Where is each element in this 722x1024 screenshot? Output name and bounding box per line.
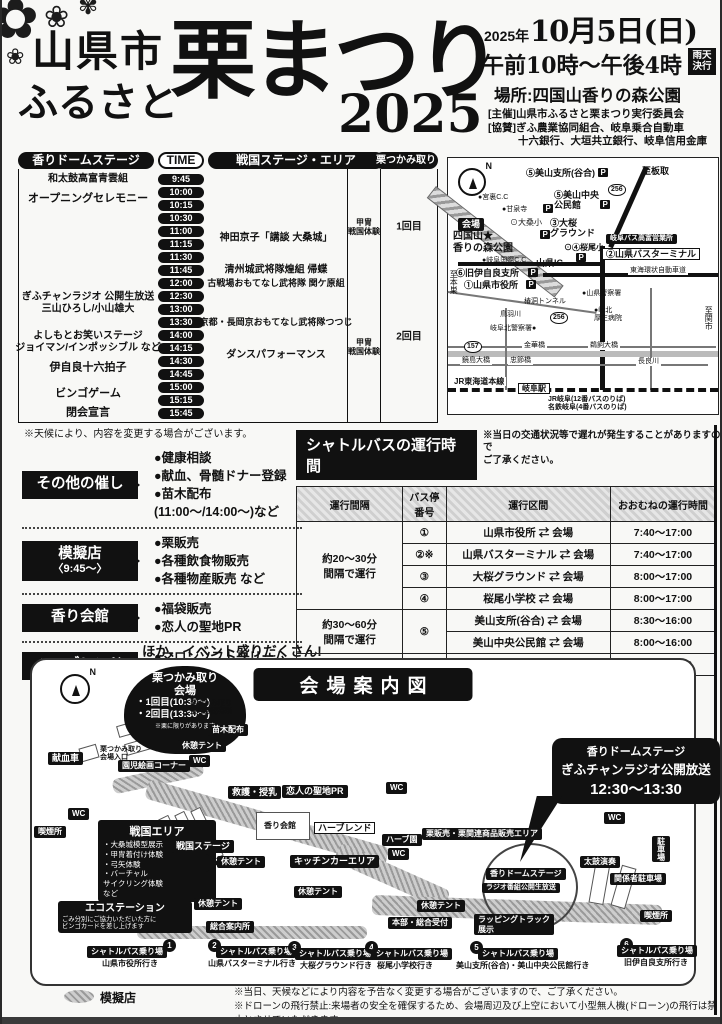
parking-icon: P xyxy=(598,168,608,177)
shuttle-stop-label: シャトルバス乗り場 xyxy=(617,945,697,957)
route-cell: 美山中央公民館 ⇄ 会場 xyxy=(446,632,610,654)
route-256-shield: 256 xyxy=(550,312,568,324)
time-slot-11:15: 11:15 xyxy=(158,239,204,250)
event-armor-1: 甲冑 戦国体験 xyxy=(348,218,380,236)
road xyxy=(650,288,652,390)
stop1-dest: 山県市役所行き xyxy=(102,959,158,968)
interval-cell: 約30〜60分 間隔で運行 xyxy=(297,610,403,654)
golf-club: ●宮裏C.C xyxy=(478,194,508,202)
parking-icon: P xyxy=(526,280,536,289)
time-slot-13:30: 13:30 xyxy=(158,317,204,328)
event-date: 10月5日(日) xyxy=(530,8,697,50)
event-opening: オープニングセレモニー xyxy=(28,193,148,206)
jr-line xyxy=(448,388,718,392)
city-hall: ①山県市役所 xyxy=(464,280,518,290)
extras-group-title: 香り会館 xyxy=(22,604,138,632)
kinka-bridge: 金華橋 xyxy=(522,342,547,350)
extras-item: ●苗木配布(11:00〜/14:00〜)など xyxy=(154,485,302,521)
dome-stage-label: 香りドームステージ xyxy=(486,868,566,880)
stall-legend-icon xyxy=(64,990,94,1003)
to-seki: 至関市 xyxy=(704,306,713,330)
extras-group: 香り会館 ●福袋販売●恋人の聖地PR xyxy=(22,593,302,641)
herblend: ハーブレンド xyxy=(314,822,375,834)
col-header: 運行間隔 xyxy=(297,487,403,522)
group-title: 模擬店 xyxy=(58,546,102,562)
wc: WC xyxy=(386,782,407,794)
interval-cell: 約20〜30分 間隔で運行 xyxy=(297,522,403,610)
stop4-dest: 桜尾小学校行き xyxy=(377,961,433,970)
event-closing: 閉会宣言 xyxy=(66,407,110,420)
rest-tent: 休憩テント xyxy=(217,856,265,868)
road xyxy=(458,262,603,266)
kuri-sales-area: 栗販売・栗関連商品販売エリア xyxy=(422,828,542,840)
stall-legend-label: 模擬店 xyxy=(100,989,136,1006)
event-armor-2: 甲冑 戦国体験 xyxy=(348,338,380,356)
time-slot-13:00: 13:00 xyxy=(158,304,204,315)
time-slot-14:15: 14:15 xyxy=(158,343,204,354)
parking: 駐車場 xyxy=(652,836,670,862)
venue-labels-layer: 献血車栗つかみ取り 会場入口栗つかみ取り 整理券配布所苗木配布休憩テントWC園児… xyxy=(32,660,698,988)
parking-icon: P xyxy=(543,204,553,213)
col-header: 運行区間 xyxy=(446,487,610,522)
date-prefix: 2025年 xyxy=(484,26,529,46)
stop2-dest: 山県バスターミナル行き xyxy=(208,959,296,968)
time-slot-12:30: 12:30 xyxy=(158,291,204,302)
col-header: バス停 番号 xyxy=(403,487,446,522)
to-itadori: 至板取 xyxy=(642,166,669,176)
gifu-kita-police: 岐阜北警察署● xyxy=(490,325,536,333)
time-slot-15:45: 15:45 xyxy=(158,408,204,419)
shuttle-stop-label: シャトルバス乗り場 xyxy=(372,948,452,960)
event-sekigahara: 古戦場おもてなし武将隊 関ケ原組 xyxy=(207,278,344,288)
first-aid-nursing: 救護・授乳 xyxy=(228,786,281,799)
flyer-page: ✿ ❀ ✾ ❀ 山県市 ふるさと 栗まつり 2025 2025年 10月5日(日… xyxy=(0,0,722,1024)
venue-map: 会場案内図 N 栗つかみ取り 会場 ・1回目(10:30〜) ・2回目(13:3… xyxy=(30,658,696,986)
event-taiko: 和太鼓高富青雲組 xyxy=(48,173,128,185)
kuri-round-2: 2回目 xyxy=(396,331,422,343)
temple: ●甘泉寺 xyxy=(502,206,527,214)
gifu-bus-stops: JR岐阜(12番バスのりば) 名鉄岐阜(4番バスのりば) xyxy=(548,396,627,412)
time-slot-9:45: 9:45 xyxy=(158,174,204,185)
compass-icon: N xyxy=(458,168,486,196)
event-ijira: 伊自良十六拍子 xyxy=(50,362,127,375)
furusato-text: ふるさと xyxy=(18,70,178,128)
miyama-branch: ⑤美山支所(谷合) xyxy=(526,168,595,178)
ijira-branch: ⑥旧伊自良支所 xyxy=(456,268,519,278)
stop5-dest: 美山支所(谷合)・美山中央公民館行き xyxy=(456,961,589,970)
blood-donation: 献血車 xyxy=(48,752,83,765)
shuttle-stop-label: シャトルバス乗り場 xyxy=(478,948,558,960)
rain-or-shine-badge: 雨天決行 xyxy=(688,48,716,75)
group-title: 香り会館 xyxy=(51,609,109,625)
stage-schedule-table: 香りドームステージ TIME 戦国ステージ・エリア 栗つかみ取り 和太鼓高富青雲… xyxy=(18,152,438,424)
time-slot-14:45: 14:45 xyxy=(158,369,204,380)
footer-note-1: ※当日、天候などにより内容を予告なく変更する場合がございますので、ご了承ください… xyxy=(234,986,720,1000)
route-cell: 大桜グラウンド ⇄ 会場 xyxy=(446,566,610,588)
time-cell: 8:00〜17:00 xyxy=(610,588,715,610)
event-place: 場所:四国山香りの森公園 xyxy=(494,82,681,106)
stop3-dest: 大桜グラウンド行き xyxy=(300,961,372,970)
event-yoshimoto: よしもとお笑いステージ ジョイマン/インポッシブル など xyxy=(15,331,161,354)
wrapping-truck: ラッピングトラック 展示 xyxy=(474,914,554,935)
road xyxy=(448,291,597,314)
col-header: おおむねの運行時間 xyxy=(610,487,715,522)
tunnel: 椿洞トンネル xyxy=(524,298,566,306)
event-nagaokakyo: 京都・長岡京おもてなし武将隊つつじ xyxy=(200,317,353,327)
extras-section: その他の催し ●健康相談●献血、骨髄ドナー登録●苗木配布(11:00〜/14:0… xyxy=(22,444,302,689)
shuttle-stop-label: シャトルバス乗り場 xyxy=(87,946,167,958)
shuttle-stop-label: シャトルバス乗り場 xyxy=(216,946,296,958)
wc: WC xyxy=(189,755,210,767)
time-slot-15:15: 15:15 xyxy=(158,395,204,406)
time-slot-10:00: 10:00 xyxy=(158,187,204,198)
event-dance: ダンスパフォーマンス xyxy=(226,349,326,361)
extras-items: ●栗販売●各種飲食物販売●各種物産販売 など xyxy=(154,534,265,588)
gihoku-hospital: ●岐北 厚生病院 xyxy=(594,307,622,323)
yamagata-bus-terminal: ②山県バスターミナル xyxy=(602,248,700,260)
shuttle-bus-section: シャトルバスの運行時間 ※当日の交通状況等で遅れが発生することがありますので ご… xyxy=(296,430,722,695)
route-cell: 桜尾小学校 ⇄ 会場 xyxy=(446,588,610,610)
staff-parking: 関係者駐車場 xyxy=(610,873,666,885)
extras-item: ●各種飲食物販売 xyxy=(154,552,265,570)
extras-item: ●福袋販売 xyxy=(154,600,241,618)
yamagata-ic: 山県IC xyxy=(536,258,563,268)
sengoku-stage: 戦国ステージ xyxy=(172,840,234,853)
schedule-grid: 和太鼓高富青雲組オープニングセレモニーぎふチャンラジオ 公開生放送 三山ひろし/… xyxy=(18,152,438,424)
taiko-spot: 太鼓演奏 xyxy=(580,856,620,868)
stop-no: ④ xyxy=(403,588,446,610)
stop-no: ⑤ xyxy=(403,610,446,654)
wc: WC xyxy=(604,812,625,824)
flower-deco-icon: ❀ xyxy=(6,44,24,70)
kuri-round-1: 1回目 xyxy=(396,221,422,233)
shuttle-table: 運行間隔 バス停 番号 運行区間 おおむねの運行時間 約20〜30分 間隔で運行… xyxy=(296,486,716,676)
stop6-dest: 旧伊自良支所行き xyxy=(624,958,688,967)
herb-garden: ハーブ園 xyxy=(382,834,422,846)
time-cell: 8:00〜16:00 xyxy=(610,632,715,654)
toba-river: 鳥羽川 xyxy=(500,311,521,319)
event-radio: ぎふチャンラジオ 公開生放送 三山ひろし/小山雄大 xyxy=(22,292,154,315)
venue-badge: 会場 xyxy=(458,218,484,231)
group-title: その他の催し xyxy=(37,476,124,492)
wc: WC xyxy=(388,848,409,860)
organizer-line: [主催]山県市ふるさと栗まつり実行委員会 xyxy=(488,106,684,121)
time-cell: 7:40〜17:00 xyxy=(610,522,715,544)
access-map: N 至板取⑤美山支所(谷合)P256⑤美山中央 公民館P●宮裏C.C●甘泉寺P⊙… xyxy=(447,157,719,415)
extras-group: その他の催し ●健康相談●献血、骨髄ドナー登録●苗木配布(11:00〜/14:0… xyxy=(22,444,302,527)
weather-note: ※天候により、内容を変更する場合がございます。 xyxy=(24,425,252,440)
stop-no: ②※ xyxy=(403,544,446,566)
extras-items: ●健康相談●献血、骨髄ドナー登録●苗木配布(11:00〜/14:00〜)など xyxy=(154,449,302,522)
sakurao-school: ⊙④桜尾小 xyxy=(564,243,604,252)
title-year: 2025 xyxy=(338,84,483,145)
time-slot-11:45: 11:45 xyxy=(158,265,204,276)
stop-no: ③ xyxy=(403,566,446,588)
wc: WC xyxy=(68,808,89,820)
smoking-area: 喫煙所 xyxy=(34,826,66,838)
sapling-handout: 苗木配布 xyxy=(208,724,248,736)
extras-group-title: 模擬店〈9:45〜〉 xyxy=(22,541,138,581)
group-subtitle: 〈9:45〜〉 xyxy=(24,563,136,575)
time-cell: 7:40〜17:00 xyxy=(610,544,715,566)
kids-art-corner: 園児絵画コーナー xyxy=(118,760,190,772)
extras-item: ●恋人の聖地PR xyxy=(154,618,241,636)
rest-tent: 休憩テント xyxy=(294,886,342,898)
road xyxy=(448,346,716,348)
parking-icon: P xyxy=(576,253,586,262)
lovers-sanctuary-pr: 恋人の聖地PR xyxy=(282,785,348,798)
shuttle-title: シャトルバスの運行時間 xyxy=(296,430,477,480)
time-slot-10:30: 10:30 xyxy=(158,213,204,224)
information: 総合案内所 xyxy=(206,921,254,933)
gifu-intl-cc: ●岐阜国際C.C xyxy=(482,257,526,265)
extras-items: ●福袋販売●恋人の聖地PR xyxy=(154,600,241,636)
shuttle-delay-note: ※当日の交通状況等で遅れが発生することがありますので ご了承ください。 xyxy=(483,430,722,467)
osakura-ground: ③大桜 グラウンド xyxy=(550,218,595,239)
stop-no: ① xyxy=(403,522,446,544)
jr-tokaido-line: JR東海道本線 xyxy=(452,377,506,386)
gifu-station: 岐阜駅 xyxy=(518,383,550,394)
extras-item: ●健康相談 xyxy=(154,449,302,467)
extras-item: ●栗販売 xyxy=(154,534,265,552)
smoking-area: 喫煙所 xyxy=(640,910,672,922)
event-kodan: 神田京子「講談 大桑城」 xyxy=(220,232,333,244)
route-cell: 美山支所(谷合) ⇄ 会場 xyxy=(446,610,610,632)
time-cell: 8:00〜17:00 xyxy=(610,566,715,588)
chusetsu-bridge: 忠節橋 xyxy=(508,357,533,365)
extras-item: ●各種物産販売 など xyxy=(154,570,265,588)
kagashima-bridge: 鏡島大橋 xyxy=(460,357,492,365)
time-slot-11:00: 11:00 xyxy=(158,226,204,237)
route-cell: 山県市役所 ⇄ 会場 xyxy=(446,522,610,544)
scan-edge-artifact xyxy=(2,1017,722,1024)
shuttle-stop-label: シャトルバス乗り場 xyxy=(295,948,375,960)
kuri-ticket: 栗つかみ取り 整理券配布所 xyxy=(190,700,232,716)
kitchen-car-area: キッチンカーエリア xyxy=(290,855,379,868)
rest-tent: 休憩テント xyxy=(194,898,242,910)
event-bingo: ビンゴゲーム xyxy=(55,388,121,401)
extras-group-title: その他の催し xyxy=(22,471,138,499)
parking-icon: P xyxy=(540,230,550,239)
time-slot-14:30: 14:30 xyxy=(158,356,204,367)
ukai-bridge: 鵜飼大橋 xyxy=(588,342,620,350)
route-cell: 山県バスターミナル ⇄ 会場 xyxy=(446,544,610,566)
event-kiyosu: 清州城武将隊煌組 帰蝶 xyxy=(225,264,328,276)
time-slot-15:00: 15:00 xyxy=(158,382,204,393)
route-256-shield: 256 xyxy=(608,184,626,196)
miyama-hall: ⑤美山中央 公民館 xyxy=(554,190,599,211)
table-row: 約20〜30分 間隔で運行 ① 山県市役所 ⇄ 会場 7:40〜17:00 xyxy=(297,522,716,544)
kaori-kaikan: 香り会館 xyxy=(264,821,296,830)
time-slot-11:30: 11:30 xyxy=(158,252,204,263)
sponsor-line-2: 十六銀行、大垣共立銀行、岐阜信用金庫 xyxy=(518,133,707,148)
time-slot-12:00: 12:00 xyxy=(158,278,204,289)
time-slot-14:00: 14:00 xyxy=(158,330,204,341)
rest-tent: 休憩テント xyxy=(178,740,226,752)
venue-name: 四国山★ 香りの森公園 xyxy=(453,231,513,254)
yamagata-police: ●山県警察署 xyxy=(582,290,621,298)
radio-live-label: ラジオ番組公開生放送 xyxy=(482,883,560,893)
rest-tent: 休憩テント xyxy=(417,900,465,912)
nagara-river: 長良川 xyxy=(636,358,661,366)
table-row: 約30〜60分 間隔で運行 ⑤ 美山支所(谷合) ⇄ 会場 8:30〜16:00 xyxy=(297,610,716,632)
extras-item: ●献血、骨髄ドナー登録 xyxy=(154,467,302,485)
hq-reception: 本部・総合受付 xyxy=(388,917,452,929)
parking-icon: P xyxy=(528,268,538,277)
parking-icon: P xyxy=(600,200,610,209)
okuwa-school: ⊙大桑小 xyxy=(510,218,542,227)
event-time: 午前10時〜午後4時 xyxy=(482,48,682,80)
tokai-kanjo-expwy: 東海環状自動車道 xyxy=(628,267,688,275)
extras-group: 模擬店〈9:45〜〉 ●栗販売●各種飲食物販売●各種物産販売 など xyxy=(22,527,302,593)
time-slot-10:15: 10:15 xyxy=(158,200,204,211)
time-cell: 8:30〜16:00 xyxy=(610,610,715,632)
route-157-shield: 157 xyxy=(464,341,482,353)
scan-edge-artifact xyxy=(714,425,717,1015)
gifu-bus-office: 岐阜バス高富営業所 xyxy=(606,234,677,244)
to-motosu: 至本巣 xyxy=(449,270,458,294)
